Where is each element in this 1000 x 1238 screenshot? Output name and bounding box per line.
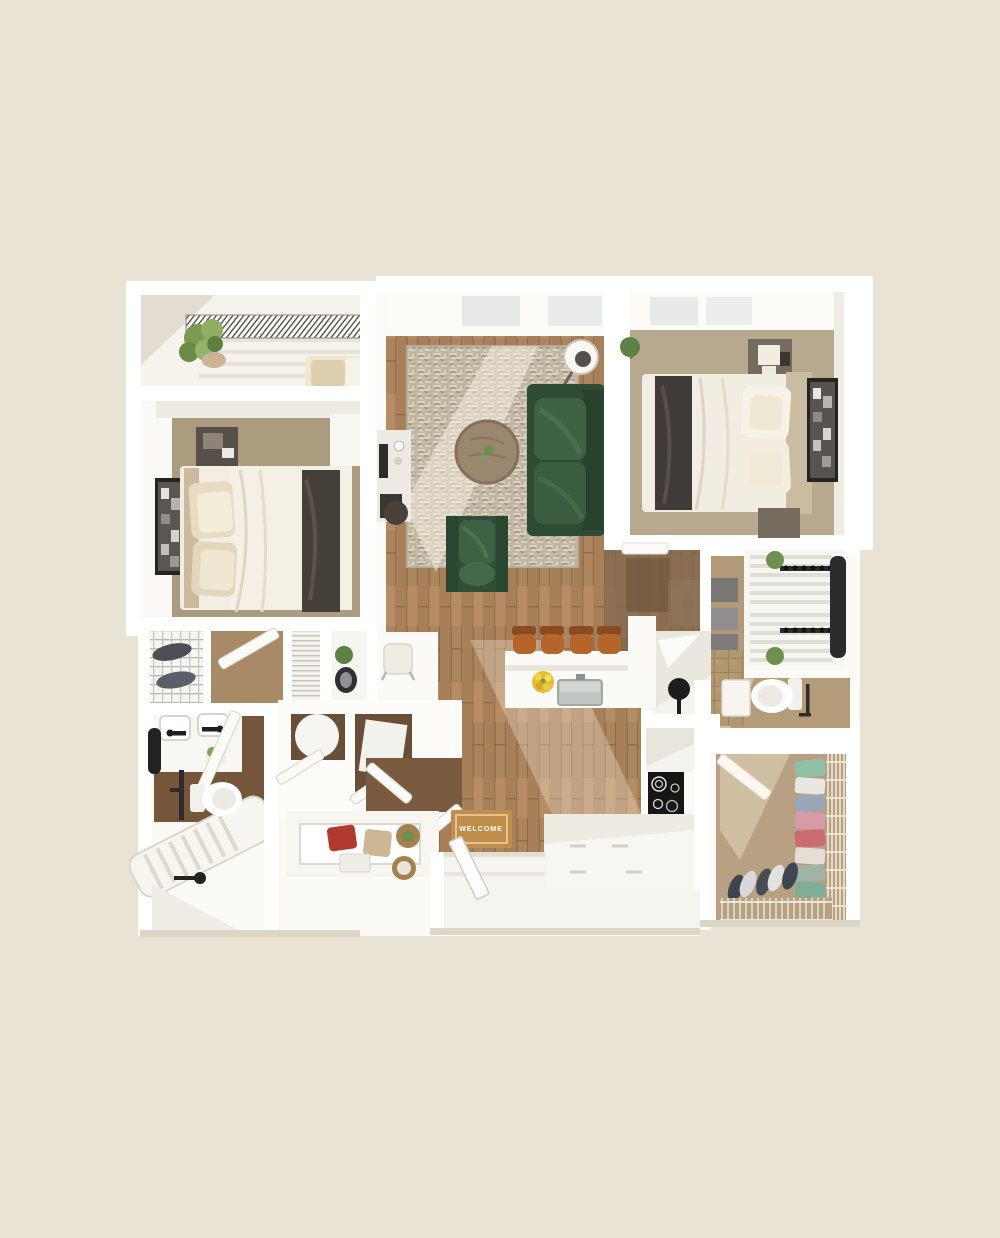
svg-text:WELCOME: WELCOME [459, 826, 503, 833]
